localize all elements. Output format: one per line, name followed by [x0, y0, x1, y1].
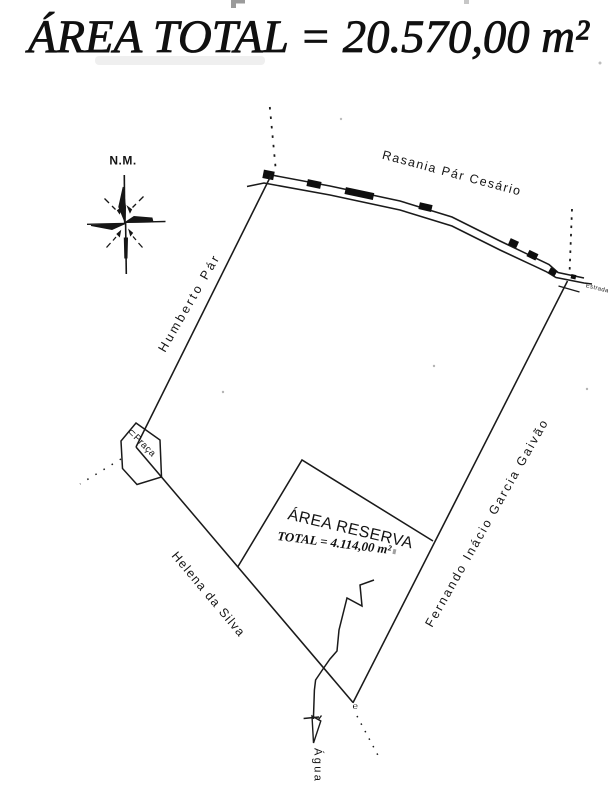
svg-text:ÁREA TOTAL = 20.570,00 m²: ÁREA TOTAL = 20.570,00 m²: [25, 11, 590, 63]
svg-text:℮: ℮: [353, 701, 358, 711]
svg-text:N.M.: N.M.: [109, 154, 136, 168]
svg-text:Água: Água: [312, 748, 325, 783]
